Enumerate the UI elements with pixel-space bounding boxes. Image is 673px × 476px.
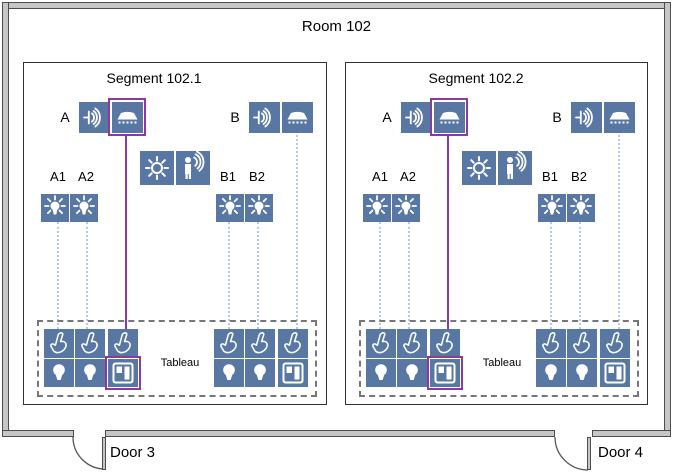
push-button (245, 329, 275, 387)
press-hand-icon (108, 329, 138, 358)
tableau-label: Tableau (152, 357, 208, 369)
segment-102-1: Segment 102.1 A B A1 A2 B1 B2 (23, 62, 327, 405)
press-hand-icon (567, 329, 597, 358)
lamp-a1-label: A1 (46, 169, 70, 184)
highlight-frame-shade (108, 98, 146, 136)
bulb-icon (536, 359, 566, 387)
wall-bottom-right (592, 430, 671, 437)
signal-line (408, 222, 410, 329)
signal-line (379, 222, 381, 329)
shining-lamp-icon (216, 194, 244, 222)
presence-detector-icon (498, 151, 532, 185)
ceiling-shade-icon (282, 102, 313, 133)
lamps-b (216, 194, 273, 222)
highlight-frame-button (105, 356, 141, 390)
shining-lamp-icon (567, 194, 595, 222)
push-button (214, 329, 244, 387)
door-3-leaf (102, 437, 106, 470)
shining-lamp-icon (245, 194, 273, 222)
control-link-line (447, 136, 449, 329)
room-title: Room 102 (0, 18, 673, 35)
door-3-label: Door 3 (110, 444, 155, 461)
press-hand-icon (44, 329, 74, 358)
sensor-devices (140, 151, 210, 185)
push-button (600, 329, 630, 387)
sounder-icon (79, 102, 110, 133)
push-button (567, 329, 597, 387)
zone-b-devices (249, 102, 313, 133)
segment-title: Segment 102.2 (376, 70, 576, 86)
press-hand-icon (430, 329, 460, 358)
brightness-sun-icon (462, 151, 496, 185)
press-hand-icon (600, 329, 630, 358)
door-4-leaf (587, 437, 591, 470)
bulb-icon (567, 359, 597, 387)
wall-bottom-left (2, 430, 74, 437)
push-button (44, 329, 74, 387)
shining-lamp-icon (392, 194, 420, 222)
signal-line (618, 135, 620, 329)
bulb-icon (75, 359, 105, 387)
bulb-icon (397, 359, 427, 387)
lamp-a2-label: A2 (74, 169, 98, 184)
shining-lamp-icon (70, 194, 98, 222)
press-hand-icon (245, 329, 275, 358)
lamps-a (363, 194, 420, 222)
signal-line (296, 135, 298, 329)
signal-line (57, 222, 59, 329)
lamp-b2-label: B2 (567, 169, 591, 184)
sounder-icon (401, 102, 432, 133)
bulb-icon (366, 359, 396, 387)
lamps-a (41, 194, 98, 222)
push-button (366, 329, 396, 387)
zone-b-devices (571, 102, 635, 133)
highlight-frame-button (427, 356, 463, 390)
segment-title: Segment 102.1 (54, 70, 254, 86)
brightness-sun-icon (140, 151, 174, 185)
room-plan-diagram: Room 102 Segment 102.1 A B A1 A2 B1 B2 (0, 0, 673, 476)
push-button (75, 329, 105, 387)
segment-102-2: Segment 102.2 A B A1 A2 B1 B2 (345, 62, 648, 405)
lamp-a2-label: A2 (396, 169, 420, 184)
sounder-icon (571, 102, 602, 133)
lamp-b1-label: B1 (538, 169, 562, 184)
shining-lamp-icon (538, 194, 566, 222)
lamp-b2-label: B2 (245, 169, 269, 184)
signal-line (550, 222, 552, 329)
press-hand-icon (214, 329, 244, 358)
bulb-icon (245, 359, 275, 387)
signal-line (86, 222, 88, 329)
lamps-b (538, 194, 595, 222)
lamp-a1-label: A1 (368, 169, 392, 184)
window-shutter-icon (278, 359, 308, 387)
zone-b-label: B (547, 109, 567, 125)
press-hand-icon (536, 329, 566, 358)
press-hand-icon (366, 329, 396, 358)
push-button (536, 329, 566, 387)
press-hand-icon (397, 329, 427, 358)
sounder-icon (249, 102, 280, 133)
ceiling-shade-icon (604, 102, 635, 133)
sensor-devices (462, 151, 532, 185)
press-hand-icon (278, 329, 308, 358)
push-button (397, 329, 427, 387)
wall-right (664, 2, 671, 437)
window-shutter-icon (600, 359, 630, 387)
tableau-label: Tableau (474, 357, 530, 369)
zone-b-label: B (225, 109, 245, 125)
bulb-icon (214, 359, 244, 387)
push-button (278, 329, 308, 387)
control-link-line (125, 136, 127, 329)
shining-lamp-icon (363, 194, 391, 222)
bulb-icon (44, 359, 74, 387)
lamp-b1-label: B1 (216, 169, 240, 184)
presence-detector-icon (176, 151, 210, 185)
press-hand-icon (75, 329, 105, 358)
highlight-frame-shade (430, 98, 468, 136)
wall-top (2, 2, 671, 9)
signal-line (579, 222, 581, 329)
signal-line (228, 222, 230, 329)
shining-lamp-icon (41, 194, 69, 222)
zone-a-label: A (55, 109, 75, 125)
signal-line (257, 222, 259, 329)
door-4-label: Door 4 (598, 444, 643, 461)
wall-bottom-middle (105, 430, 555, 437)
zone-a-label: A (377, 109, 397, 125)
wall-left (2, 2, 9, 437)
